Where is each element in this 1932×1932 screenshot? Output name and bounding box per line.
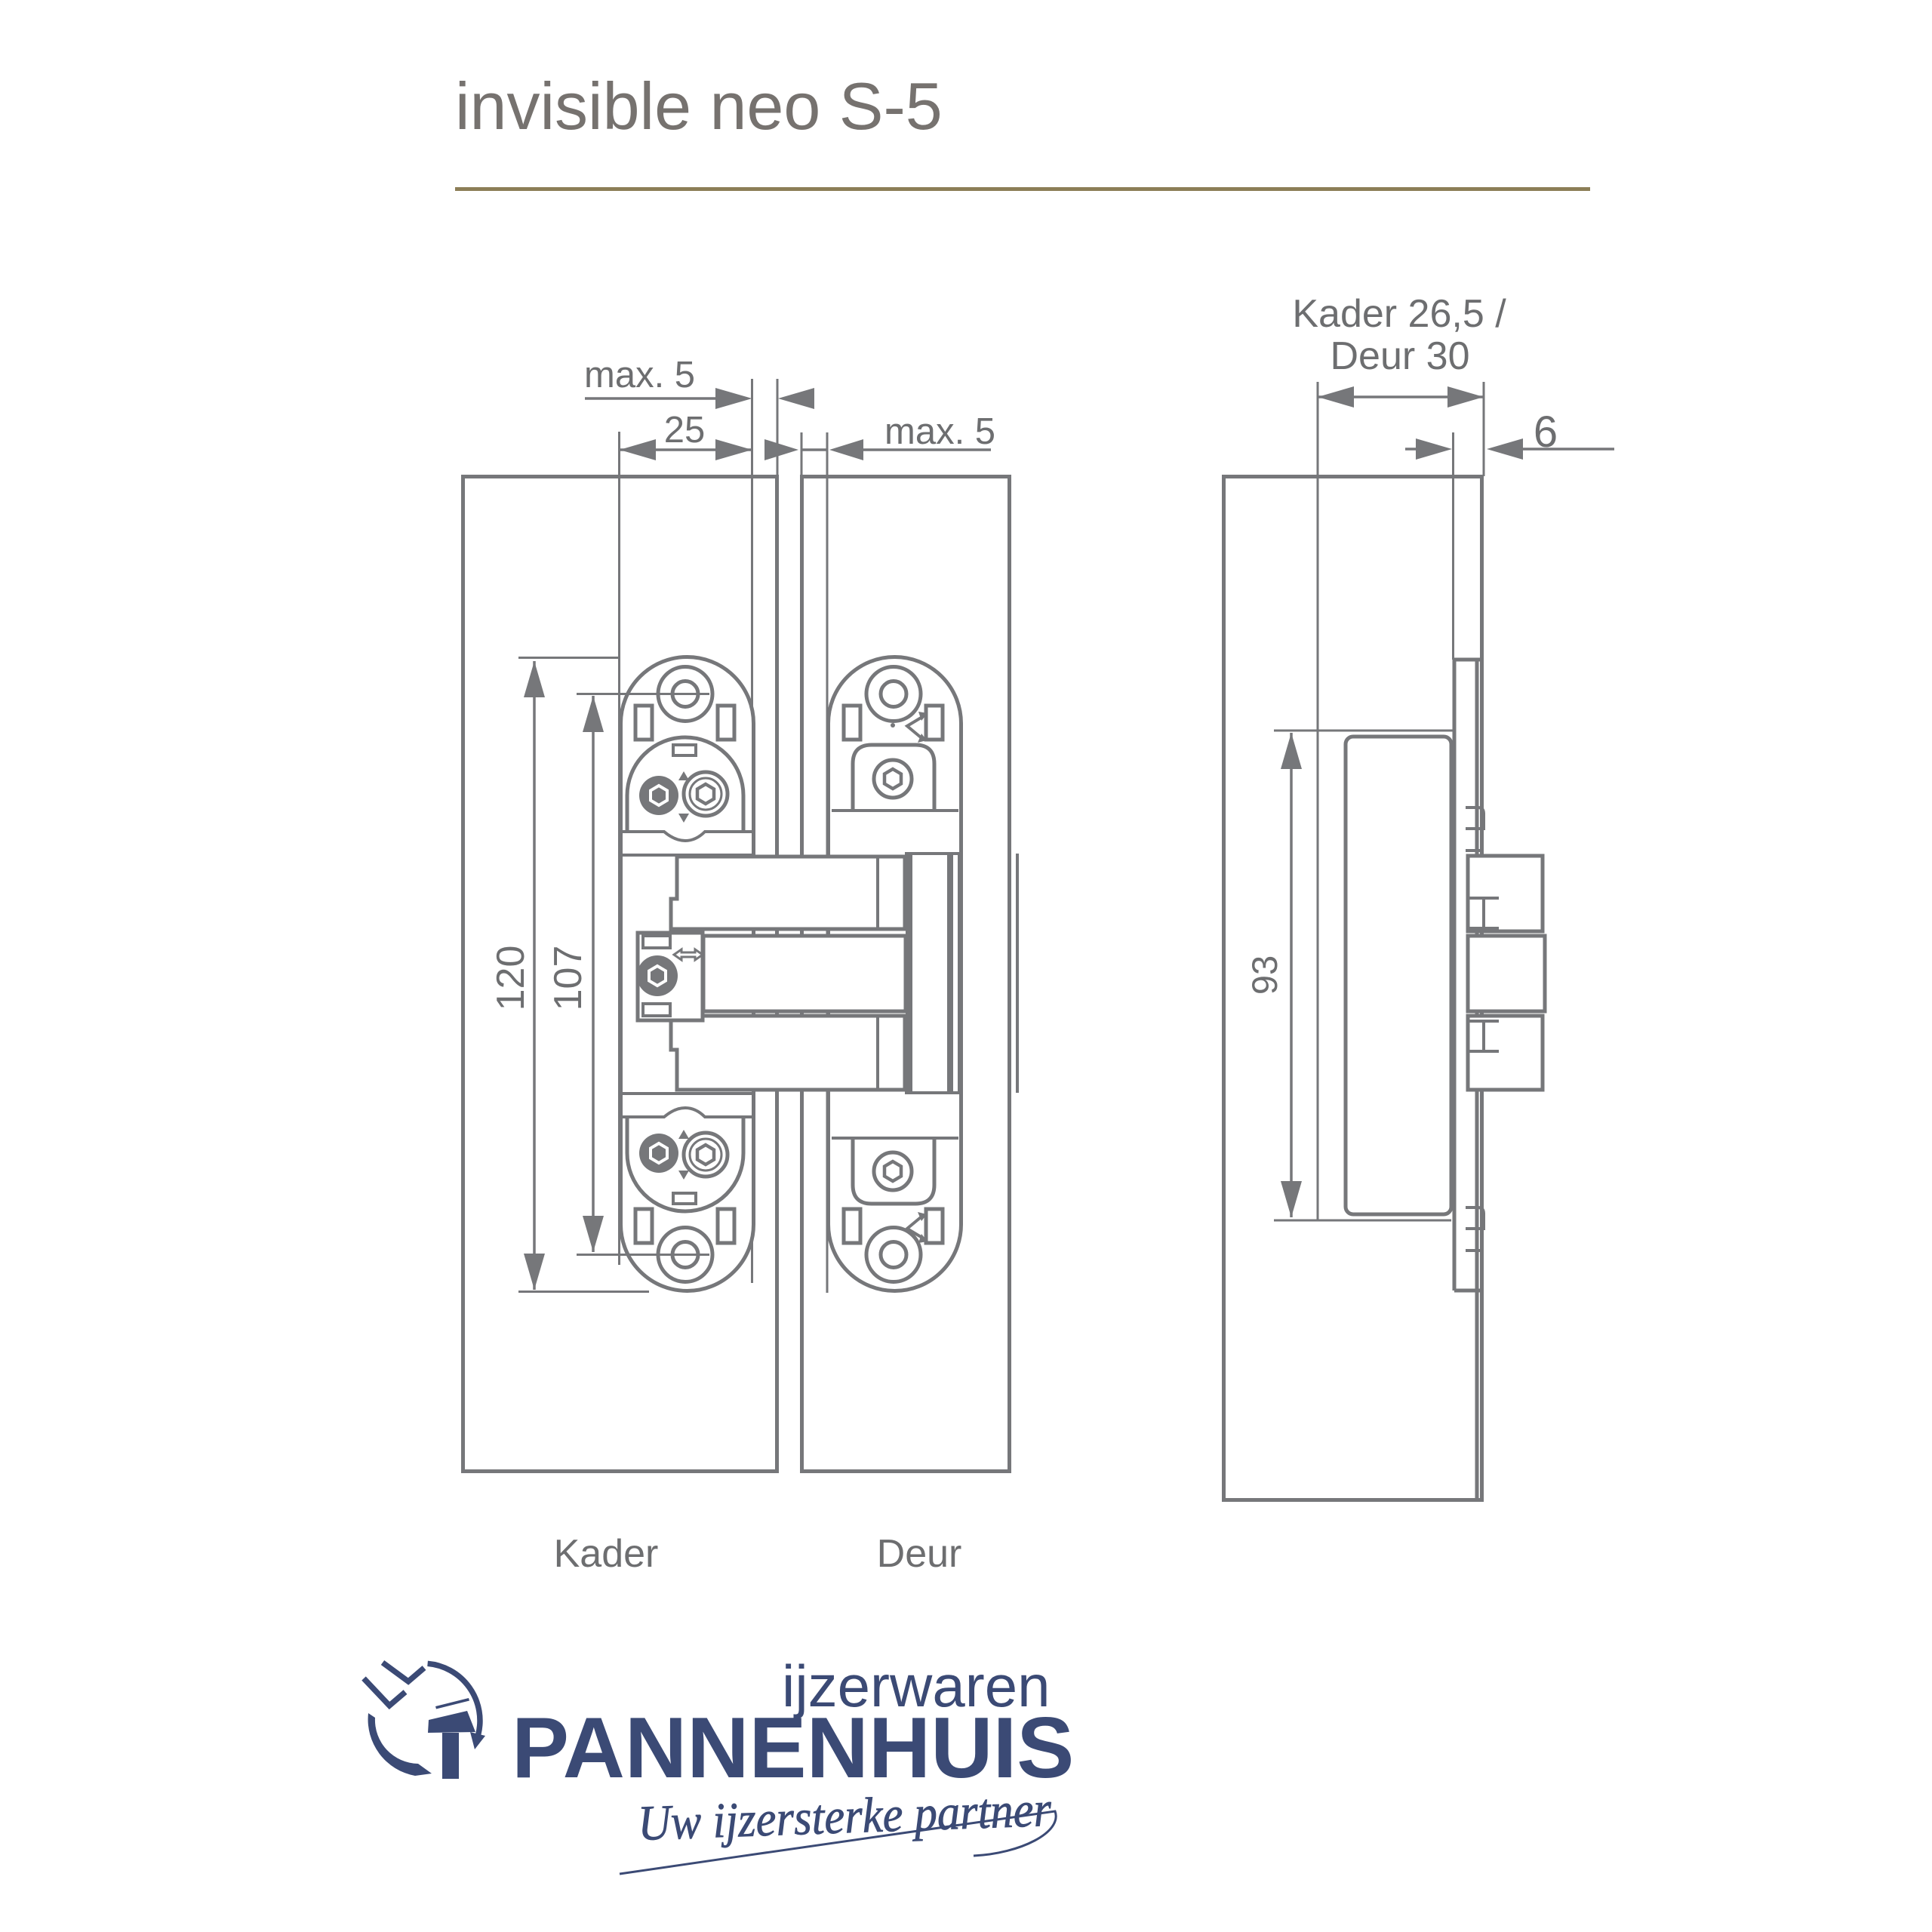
- svg-text:invisible neo S-5: invisible neo S-5: [455, 69, 943, 143]
- svg-text:PANNENHUIS: PANNENHUIS: [512, 1700, 1074, 1796]
- svg-text:Kader 26,5 /: Kader 26,5 /: [1292, 292, 1506, 336]
- svg-text:120: 120: [489, 946, 533, 1011]
- svg-text:6: 6: [1534, 408, 1558, 457]
- svg-text:25: 25: [664, 410, 706, 451]
- svg-text:max. 5: max. 5: [584, 355, 695, 395]
- svg-text:Deur: Deur: [877, 1532, 962, 1576]
- svg-text:93: 93: [1244, 955, 1284, 995]
- svg-text:max. 5: max. 5: [884, 411, 995, 452]
- svg-text:Kader: Kader: [554, 1532, 659, 1576]
- svg-text:107: 107: [546, 946, 590, 1011]
- svg-text:Deur 30: Deur 30: [1331, 334, 1470, 378]
